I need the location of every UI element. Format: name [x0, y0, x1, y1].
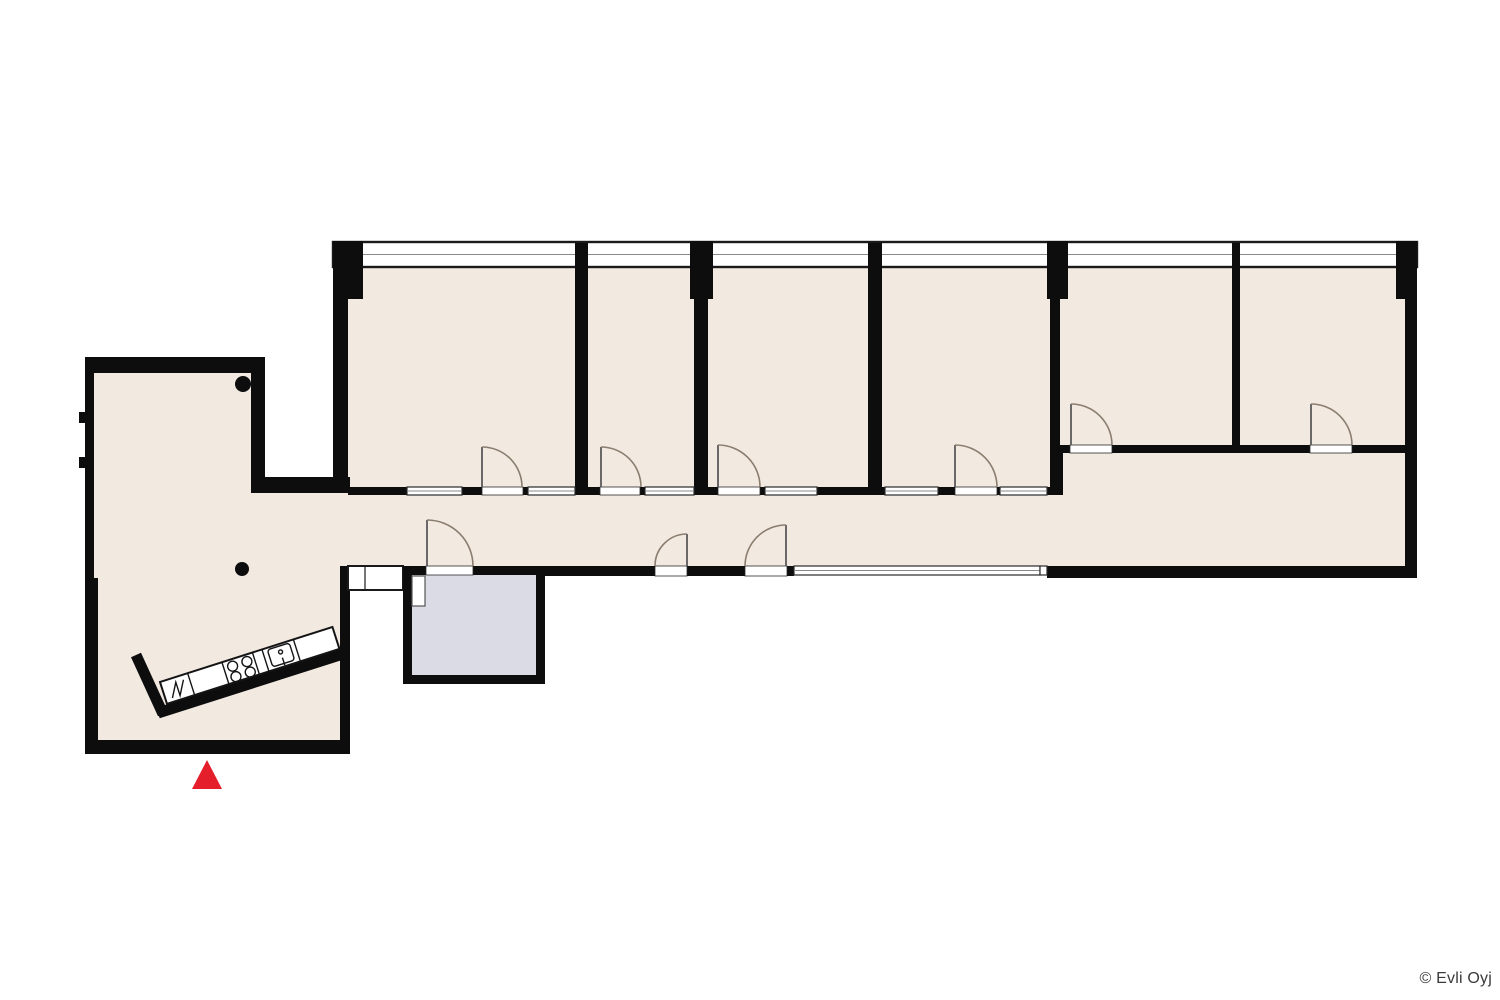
wall-room1-2 [575, 243, 588, 491]
office-room-5-floor [1060, 267, 1232, 445]
lobby-floor-lower [93, 493, 340, 742]
window-strip [1000, 487, 1047, 495]
notch-horizontal-wall [251, 477, 350, 493]
right-exterior-wall [1405, 241, 1417, 578]
notch-vertical-wall [251, 373, 265, 477]
column-dot-2 [235, 562, 249, 576]
left-wall-bump-1 [79, 412, 85, 423]
lobby-top-wall [85, 357, 265, 373]
lobby-left-wall-lower [85, 578, 98, 750]
window-strip [528, 487, 575, 495]
window-strip [407, 487, 462, 495]
office-room-1-floor [348, 267, 575, 487]
floor-plan-canvas [0, 0, 1500, 1000]
office-room-6-floor [1240, 267, 1405, 445]
lobby-left-wall-upper [85, 357, 94, 579]
window-strip [885, 487, 938, 495]
wall-room3-4 [868, 243, 882, 491]
office-room-3-floor [708, 267, 868, 487]
floor-plan-svg [0, 0, 1500, 1000]
wall-room5-6 [1232, 243, 1240, 449]
window-strip [765, 487, 817, 495]
corridor-window-strip [794, 566, 1047, 575]
office-room-4-floor [882, 267, 1050, 487]
highlighted-room [403, 566, 545, 684]
corridor-floor-right [1060, 453, 1405, 566]
highlighted-room-door-leaf [412, 576, 425, 606]
window-strip [645, 487, 694, 495]
copyright-text: © Evli Oyj [1420, 970, 1492, 988]
lobby-bottom-wall [85, 740, 350, 754]
highlighted-room-floor [412, 575, 536, 675]
entrance-marker-triangle [192, 760, 222, 789]
room1-left-wall [333, 243, 348, 491]
left-wall-bump-2 [79, 457, 85, 468]
shaft-window-box [348, 566, 403, 590]
column-dot-1 [235, 376, 251, 392]
highlighted-room-door-threshold [426, 566, 473, 575]
office-room-2-floor [588, 267, 694, 487]
wall-room2-3 [694, 243, 708, 491]
